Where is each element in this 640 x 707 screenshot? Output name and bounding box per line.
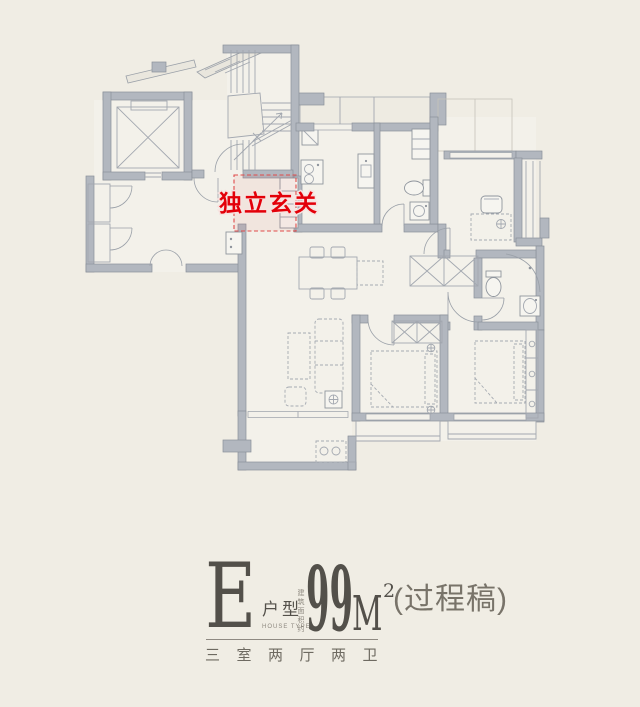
shoe-cabinet	[226, 232, 242, 254]
layout-summary: 三室两厅两卫	[205, 648, 394, 663]
floor-plan-page: 独立玄关 E 户型 HOUSE TYPE 建筑面积约 99 M 2 (过程稿) …	[0, 0, 640, 707]
unit-label: 户型	[262, 601, 302, 618]
toilet-tank	[423, 180, 430, 196]
wash-basin	[410, 202, 429, 220]
study-window	[450, 153, 512, 159]
draft-note: (过程稿)	[393, 585, 508, 615]
vanity-cabinet	[412, 129, 430, 159]
wash-basin	[520, 296, 540, 316]
area-unit: M	[352, 590, 382, 638]
toilet-tank	[486, 271, 501, 277]
toilet	[405, 181, 424, 195]
area-note: 建筑面积约	[297, 589, 304, 641]
foyer-highlight-label: 独立玄关	[219, 190, 319, 216]
kitchen-window	[314, 124, 352, 130]
bedroom2-window	[454, 414, 526, 420]
area-value: 99	[306, 554, 353, 643]
kitchen-sink-counter	[358, 154, 374, 188]
bedroom1-window	[366, 414, 430, 420]
caption-divider	[206, 639, 378, 640]
ac-platform	[540, 218, 549, 238]
toilet	[486, 278, 501, 297]
unit-letter: E	[205, 552, 256, 642]
